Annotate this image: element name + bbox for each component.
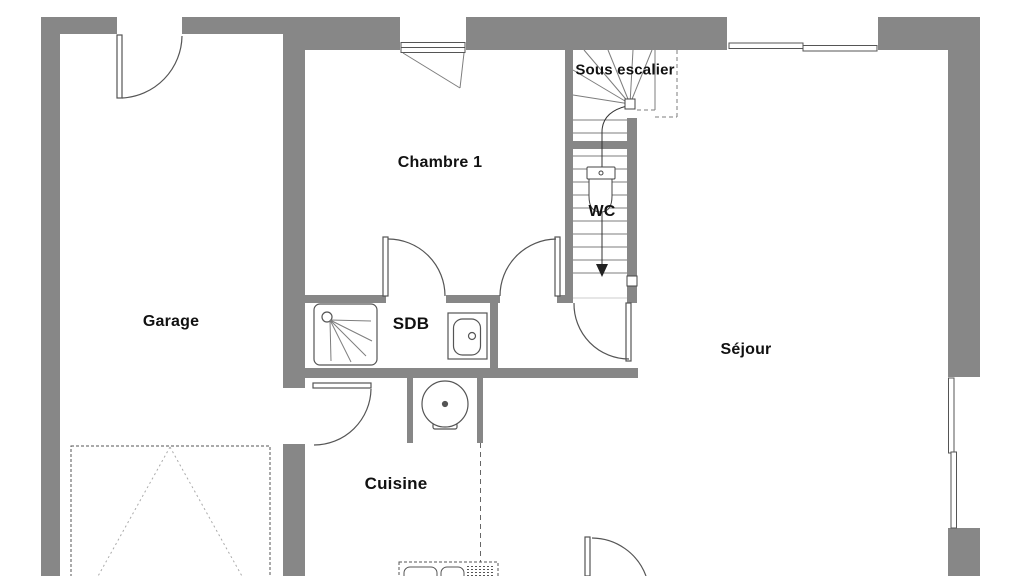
room-label-sdb: SDB (393, 314, 430, 334)
door-sejour-south (585, 537, 646, 576)
garage-door-chevron (97, 447, 243, 576)
floor-plan: Garage Chambre 1 SDB Sous escalier WC Cu… (0, 0, 1024, 576)
shower (314, 304, 377, 365)
floor-plan-drawing (0, 0, 1024, 576)
room-label-cuisine: Cuisine (365, 474, 428, 494)
wall-under-stair-band (565, 141, 637, 149)
stair-newel-bottom (627, 276, 637, 286)
wall-closet-stub-left (407, 378, 413, 443)
wall-sdb-right (490, 297, 498, 368)
room-label-wc: WC (588, 203, 615, 221)
stair-newel-top (625, 99, 635, 109)
kitchen-counter (399, 562, 498, 576)
door-wc (574, 303, 631, 361)
room-label-sejour: Séjour (721, 341, 772, 359)
kitchen-stove-hatch (467, 567, 494, 576)
wall-top-main-2 (466, 17, 727, 50)
window-chambre1 (401, 43, 465, 89)
window-sejour-top-sliding (729, 43, 877, 51)
wall-right-lower (948, 528, 980, 576)
windows (401, 43, 957, 529)
garage-parking-zone (71, 446, 270, 576)
toilet-button (599, 171, 603, 175)
kitchen-sink-basin-2 (441, 567, 464, 576)
wall-hall-bottom (305, 368, 638, 378)
window-sejour-right-sliding (949, 378, 957, 528)
sink (448, 313, 487, 359)
wall-garage-divider-upper (283, 34, 305, 388)
wall-closet-stub-right (477, 378, 483, 443)
wall-right-upper (948, 17, 980, 377)
stair-direction-arrow (596, 264, 608, 277)
sink-drain (469, 333, 476, 340)
water-heater (422, 381, 468, 429)
door-sdb (383, 237, 445, 296)
room-label-garage: Garage (143, 313, 199, 331)
room-label-sous-escalier: Sous escalier (575, 62, 674, 79)
garage-elements (71, 446, 270, 576)
kitchen-sink-basin-1 (404, 567, 437, 576)
door-garage-cuisine (313, 383, 371, 445)
walls (41, 17, 980, 576)
wall-top-garage-right (182, 17, 283, 34)
wall-stair-left (565, 50, 573, 303)
wall-chambre-bottom-1 (305, 295, 386, 303)
wall-top-garage-left (41, 17, 117, 34)
staircase (573, 50, 677, 286)
room-label-chambre1: Chambre 1 (398, 154, 483, 172)
door-garage-entry (117, 35, 182, 98)
water-heater-center (443, 402, 448, 407)
wall-garage-divider-lower (283, 444, 305, 576)
wall-left-exterior (41, 17, 60, 576)
door-chambre1 (500, 237, 560, 296)
